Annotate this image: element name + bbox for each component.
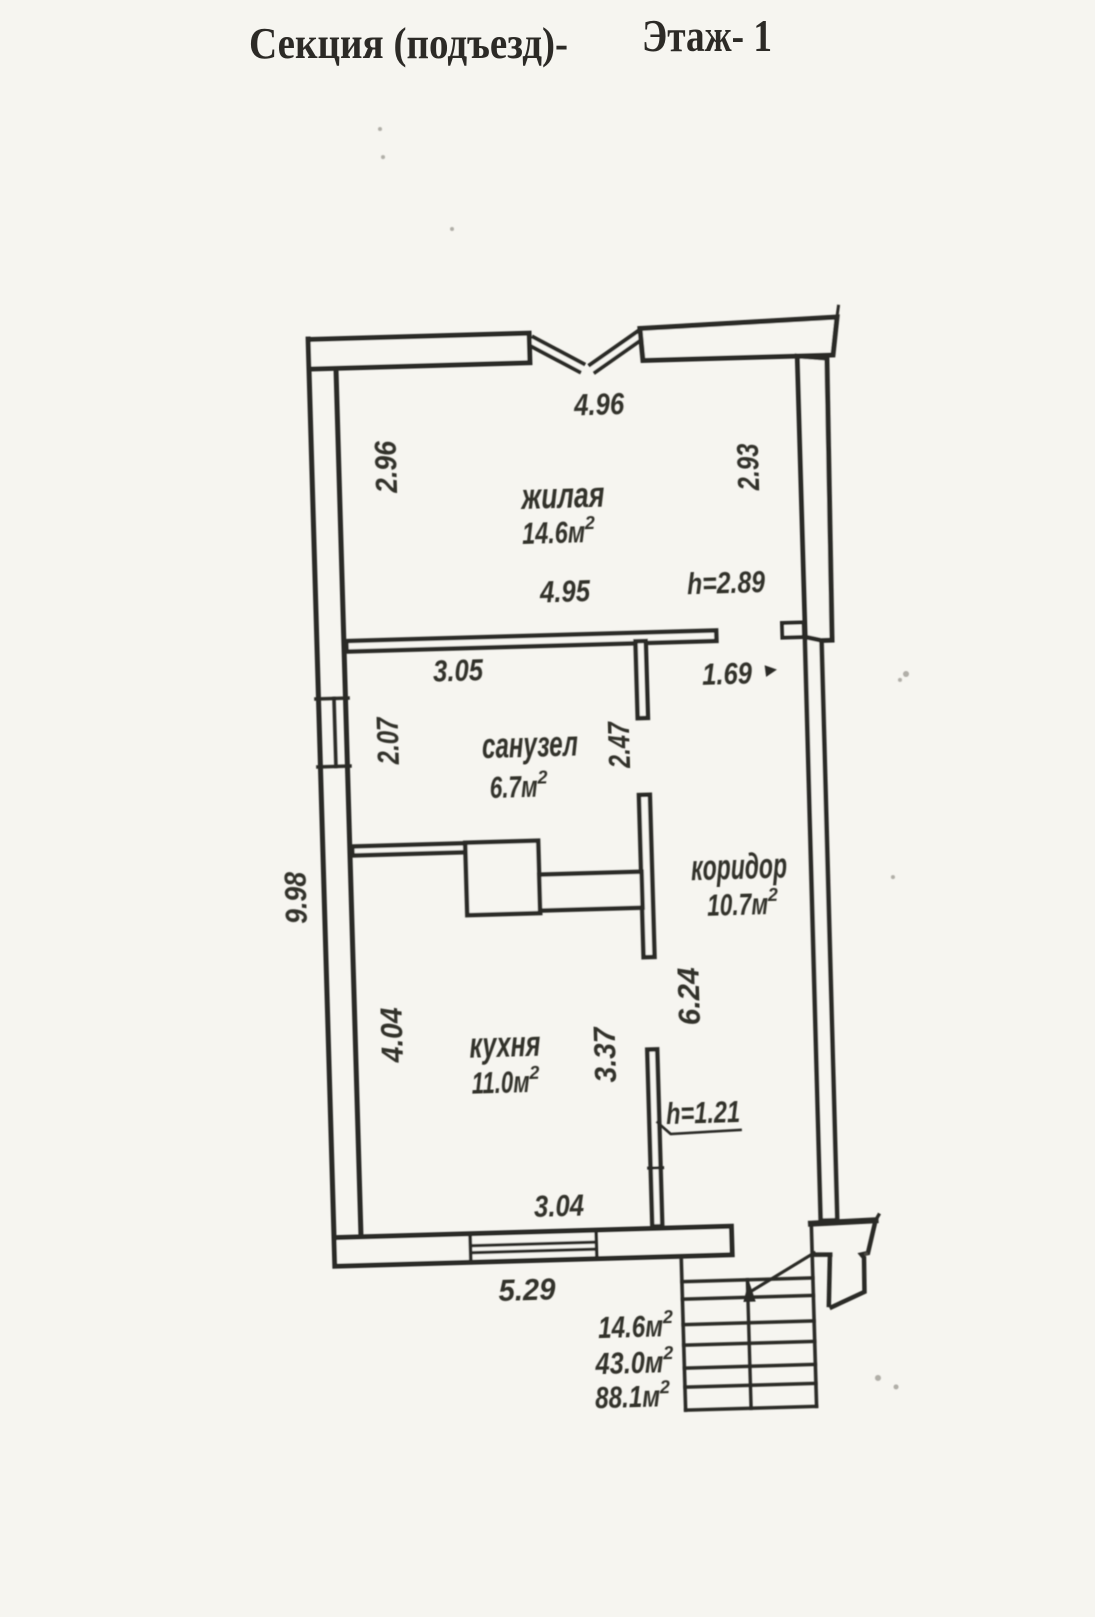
svg-text:2: 2 <box>662 1307 674 1327</box>
svg-text:санузел: санузел <box>481 722 578 766</box>
svg-text:14.6м: 14.6м <box>598 1308 664 1345</box>
svg-text:4.04: 4.04 <box>374 1007 411 1064</box>
svg-text:4.95: 4.95 <box>539 573 591 609</box>
svg-text:2.07: 2.07 <box>370 716 406 766</box>
svg-text:5.29: 5.29 <box>498 1271 557 1308</box>
svg-text:жилая: жилая <box>519 474 605 517</box>
svg-text:88.1м: 88.1м <box>595 1378 661 1415</box>
svg-text:1.69: 1.69 <box>702 655 754 691</box>
svg-text:Секция (подъезд)-: Секция (подъезд)- <box>249 19 568 68</box>
svg-text:3.37: 3.37 <box>586 1025 623 1083</box>
svg-text:9.98: 9.98 <box>278 871 315 925</box>
svg-text:2: 2 <box>767 885 779 905</box>
svg-text:11.0м: 11.0м <box>471 1064 530 1101</box>
svg-text:кухня: кухня <box>469 1023 541 1066</box>
svg-text:3.05: 3.05 <box>433 652 485 688</box>
svg-text:2: 2 <box>536 767 548 787</box>
svg-text:2: 2 <box>584 513 596 533</box>
svg-text:2: 2 <box>528 1063 540 1083</box>
svg-text:3.04: 3.04 <box>533 1187 584 1223</box>
svg-text:Этаж- 1: Этаж- 1 <box>642 10 772 61</box>
svg-text:2.47: 2.47 <box>601 720 637 769</box>
svg-text:10.7м: 10.7м <box>707 886 769 923</box>
svg-text:14.6м: 14.6м <box>522 514 586 551</box>
svg-text:2.93: 2.93 <box>730 443 766 492</box>
svg-text:4.96: 4.96 <box>573 386 625 422</box>
svg-text:h=2.89: h=2.89 <box>687 564 767 601</box>
svg-text:2.96: 2.96 <box>368 440 405 494</box>
svg-text:6.7м: 6.7м <box>489 769 538 805</box>
svg-text:6.24: 6.24 <box>670 967 707 1026</box>
svg-text:43.0м: 43.0м <box>594 1344 664 1381</box>
svg-text:2: 2 <box>662 1343 674 1363</box>
svg-text:h=1.21: h=1.21 <box>666 1094 741 1131</box>
svg-text:2: 2 <box>659 1377 671 1397</box>
svg-text:коридор: коридор <box>690 845 787 889</box>
